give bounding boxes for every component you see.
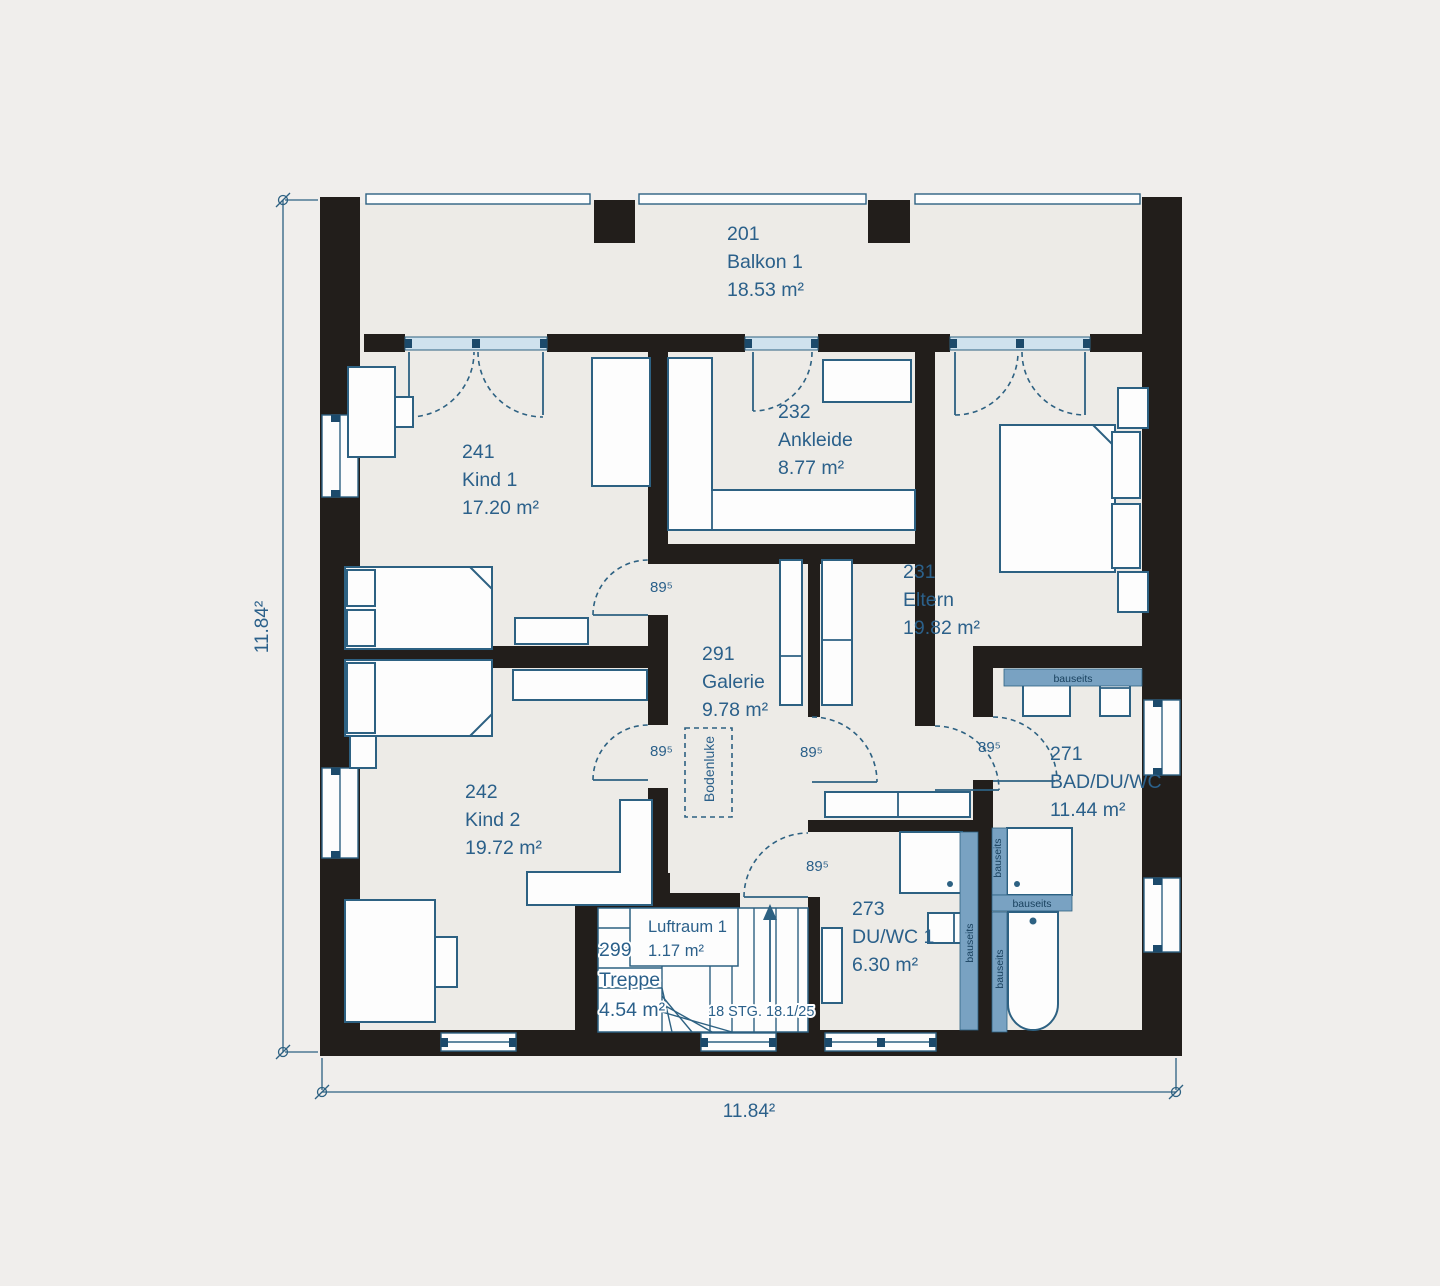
ankleide-dresser: [823, 360, 911, 402]
svg-text:Eltern: Eltern: [903, 589, 954, 611]
svg-text:BAD/DU/WC: BAD/DU/WC: [1050, 771, 1162, 793]
svg-text:231: 231: [903, 561, 936, 583]
svg-text:11.44 m²: 11.44 m²: [1050, 799, 1126, 821]
stairs-note: 18 STG. 18.1/25: [708, 1004, 814, 1020]
window-bottom-kind2: [441, 1033, 516, 1051]
window-bottom-duwc: [825, 1033, 936, 1051]
svg-text:19.72 m²: 19.72 m²: [465, 837, 542, 859]
duwc-radiator: [822, 928, 842, 1003]
balcony-door-kind1: [405, 337, 547, 350]
svg-text:6.30 m²: 6.30 m²: [852, 954, 919, 976]
duwc-shower: [900, 832, 962, 893]
door-width-kind1: 89⁵: [650, 579, 673, 596]
floor-plan-page: bauseits bauseits bauseits bauseits baus…: [0, 0, 1440, 1286]
svg-text:201: 201: [727, 223, 760, 245]
door-width-bad: 89⁵: [978, 739, 1001, 756]
svg-text:8.77 m²: 8.77 m²: [778, 457, 845, 479]
window-left-lower: [322, 768, 358, 858]
svg-text:9.78 m²: 9.78 m²: [702, 699, 769, 721]
svg-text:Luftraum 1: Luftraum 1: [648, 918, 727, 936]
svg-text:Kind 2: Kind 2: [465, 809, 520, 831]
bad-bathtub: [1008, 912, 1058, 1030]
bauseits-label-shower-strip: bauseits: [992, 838, 1004, 877]
bauseits-label-bad-mid: bauseits: [1012, 898, 1051, 910]
svg-text:Kind 1: Kind 1: [462, 469, 517, 491]
bauseits-label-bad-top: bauseits: [1053, 673, 1092, 685]
balcony-door-sills: [405, 337, 1090, 350]
window-right-upper: [1144, 700, 1180, 775]
svg-text:232: 232: [778, 401, 811, 423]
svg-text:DU/WC 1: DU/WC 1: [852, 926, 934, 948]
kind1-shelf: [515, 618, 588, 644]
svg-text:271: 271: [1050, 743, 1083, 765]
dimension-left-value: 11.84²: [252, 601, 273, 653]
svg-text:273: 273: [852, 898, 885, 920]
floor-plan-drawing: bauseits bauseits bauseits bauseits baus…: [0, 0, 1440, 1286]
svg-text:299: 299: [599, 939, 632, 961]
dimension-bottom: 11.84²: [315, 1058, 1183, 1122]
svg-text:19.82 m²: 19.82 m²: [903, 617, 980, 639]
bauseits-label-tub-strip: bauseits: [994, 949, 1006, 988]
kind1-bed: [345, 567, 492, 649]
balcony-door-ankleide: [745, 337, 818, 350]
bodenluke-label: Bodenluke: [701, 736, 717, 802]
svg-text:Ankleide: Ankleide: [778, 429, 853, 451]
door-width-duwc: 89⁵: [806, 858, 829, 875]
kind2-bed: [345, 660, 492, 736]
svg-text:241: 241: [462, 441, 495, 463]
kind2-nightstand: [350, 736, 376, 768]
svg-text:242: 242: [465, 781, 498, 803]
balcony-door-eltern: [950, 337, 1090, 350]
window-right-lower: [1144, 878, 1180, 952]
dimension-bottom-value: 11.84²: [723, 1101, 775, 1122]
svg-text:17.20 m²: 17.20 m²: [462, 497, 539, 519]
door-width-galerie: 89⁵: [800, 744, 823, 761]
dimension-left: 11.84²: [252, 193, 318, 1059]
svg-text:18.53 m²: 18.53 m²: [727, 279, 804, 301]
bauseits-label-duwc-strip: bauseits: [964, 923, 976, 962]
bad-shower: [1007, 828, 1072, 895]
door-width-kind2: 89⁵: [650, 743, 673, 760]
svg-text:Balkon 1: Balkon 1: [727, 251, 803, 273]
svg-text:4.54 m²: 4.54 m²: [599, 999, 666, 1021]
svg-text:Galerie: Galerie: [702, 671, 765, 693]
svg-text:291: 291: [702, 643, 735, 665]
svg-text:Treppe: Treppe: [599, 969, 660, 991]
hall-sideboard: [825, 792, 970, 817]
svg-text:1.17 m²: 1.17 m²: [648, 942, 704, 960]
kind1-wardrobe: [592, 358, 650, 486]
window-bottom-treppe: [701, 1033, 776, 1051]
balcony-railing: [366, 194, 1140, 204]
kind2-sideboard: [513, 670, 647, 700]
